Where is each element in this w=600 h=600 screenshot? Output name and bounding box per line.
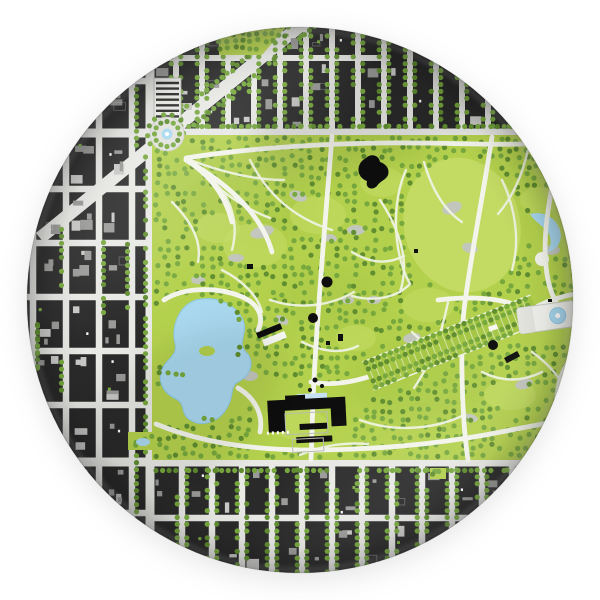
central-park-map-plate	[0, 0, 600, 600]
plate-gloss	[0, 0, 600, 600]
product-photo	[0, 0, 600, 600]
map-print	[0, 0, 600, 600]
